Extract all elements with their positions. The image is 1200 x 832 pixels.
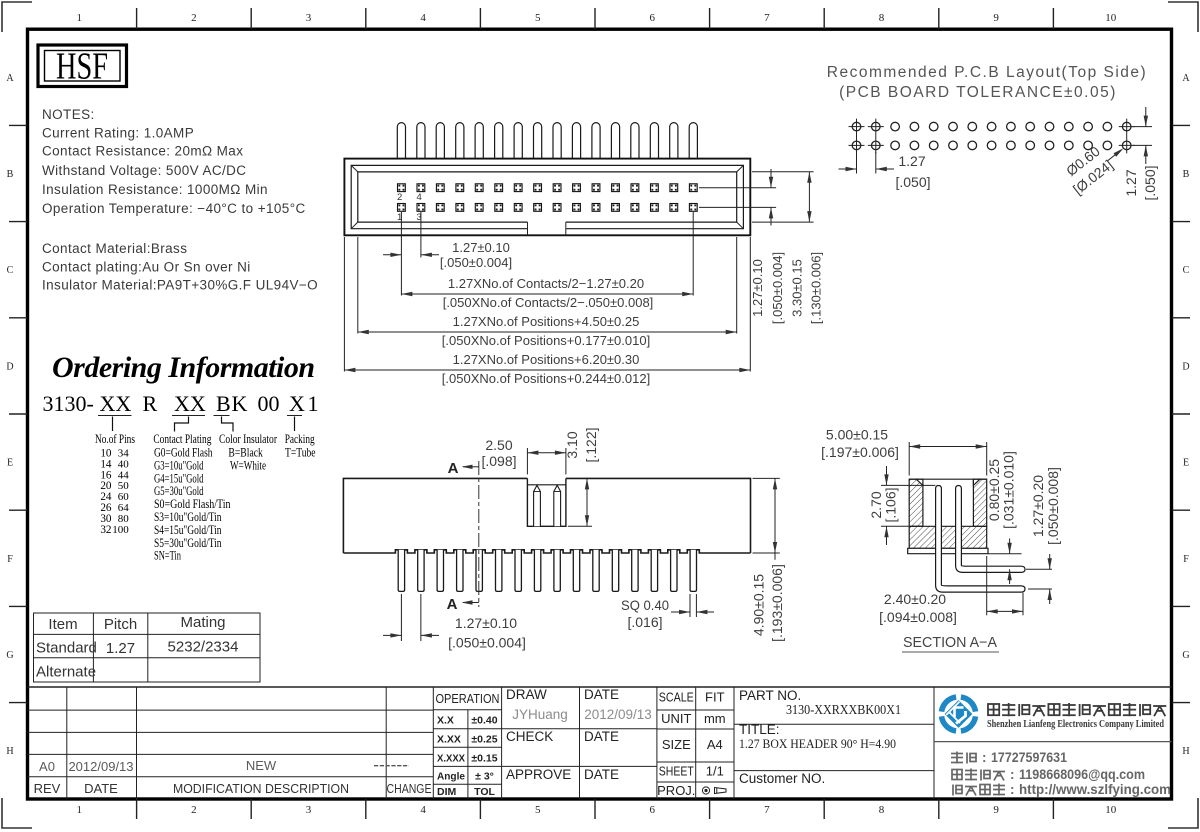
svg-text:3130-: 3130- <box>43 391 94 416</box>
svg-text:Angle: Angle <box>437 771 465 783</box>
svg-text:[.016]: [.016] <box>627 614 662 630</box>
svg-text:APPROVE: APPROVE <box>506 767 571 782</box>
svg-text:1.27±0.10: 1.27±0.10 <box>452 240 510 255</box>
svg-text:Insulation Resistance: 1000MΩ: Insulation Resistance: 1000MΩ Min <box>42 182 268 197</box>
svg-text:100: 100 <box>112 524 129 536</box>
svg-text:SQ 0.40: SQ 0.40 <box>621 597 669 613</box>
svg-text:SCALE: SCALE <box>659 690 694 705</box>
svg-text:SHEET: SHEET <box>659 764 694 779</box>
svg-text:Mating: Mating <box>180 614 225 631</box>
svg-text:Alternate: Alternate <box>36 664 96 681</box>
svg-text:Ordering Information: Ordering Information <box>52 351 315 384</box>
svg-text:[.050±0.004]: [.050±0.004] <box>770 252 785 324</box>
svg-text:1.27±0.10: 1.27±0.10 <box>750 259 765 317</box>
svg-text:[.050XNo.of Contacts/2−.050±0.: [.050XNo.of Contacts/2−.050±0.008] <box>443 295 654 310</box>
svg-text:17727597631: 17727597631 <box>991 750 1067 765</box>
svg-text:6: 6 <box>650 12 656 24</box>
svg-text:[.050±0.008]: [.050±0.008] <box>1045 467 1061 545</box>
svg-text:±0.40: ±0.40 <box>471 715 497 727</box>
svg-text:G3=10u"Gold: G3=10u"Gold <box>154 458 204 472</box>
svg-text:OPERATION: OPERATION <box>436 692 500 706</box>
svg-text:mm: mm <box>704 711 726 726</box>
svg-text:3.10: 3.10 <box>564 431 580 458</box>
svg-text:Customer NO.: Customer NO. <box>739 771 825 786</box>
svg-text:Withstand Voltage: 500V AC/DC: Withstand Voltage: 500V AC/DC <box>42 163 246 178</box>
svg-text::: : <box>982 750 987 765</box>
svg-text:Insulator Material:PA9T+30%G.F: Insulator Material:PA9T+30%G.F UL94V−O <box>42 278 318 293</box>
svg-text:4: 4 <box>420 804 426 816</box>
svg-text:3: 3 <box>306 804 312 816</box>
svg-text:X.X: X.X <box>437 715 454 727</box>
svg-text:Contact plating:Au Or Sn over: Contact plating:Au Or Sn over Ni <box>42 260 251 275</box>
svg-text:PART NO.: PART NO. <box>739 688 801 703</box>
svg-text:[.106]: [.106] <box>883 487 899 522</box>
svg-text:UNIT: UNIT <box>661 711 691 726</box>
svg-text:G0=Gold Flash: G0=Gold Flash <box>154 446 213 460</box>
svg-text:A: A <box>1182 73 1190 84</box>
svg-text:10: 10 <box>1105 804 1117 816</box>
svg-text:± 3°: ± 3° <box>475 771 494 783</box>
svg-text:H: H <box>1182 746 1189 757</box>
svg-text:1.27XNo.of Positions+6.20±0.30: 1.27XNo.of Positions+6.20±0.30 <box>453 352 640 367</box>
svg-text:Item: Item <box>48 616 77 633</box>
svg-text:DATE: DATE <box>584 687 619 702</box>
svg-text:Contact Resistance: 20mΩ Max: Contact Resistance: 20mΩ Max <box>42 144 243 159</box>
svg-text:D: D <box>1182 361 1189 372</box>
svg-text:9: 9 <box>993 804 999 816</box>
svg-text:FIT: FIT <box>705 690 725 705</box>
svg-text:[.193±0.006]: [.193±0.006] <box>769 564 785 642</box>
svg-text:[.050±0.004]: [.050±0.004] <box>448 635 526 651</box>
svg-text:T=Tube: T=Tube <box>285 446 316 460</box>
svg-text:5: 5 <box>535 804 541 816</box>
svg-text:[.098]: [.098] <box>481 453 516 469</box>
svg-text:Shenzhen Lianfeng Electronics: Shenzhen Lianfeng Electronics Company Li… <box>987 719 1164 730</box>
svg-text:[.050XNo.of Positions+0.244±0.: [.050XNo.of Positions+0.244±0.012] <box>442 371 650 386</box>
svg-text:B: B <box>1183 169 1190 180</box>
svg-text:F: F <box>7 554 13 565</box>
svg-text:1: 1 <box>308 391 319 416</box>
svg-text:Color Insulator: Color Insulator <box>219 432 277 446</box>
svg-text:S4=15u"Gold/Tin: S4=15u"Gold/Tin <box>154 523 222 537</box>
svg-text:4: 4 <box>417 192 422 203</box>
svg-text:2: 2 <box>191 804 197 816</box>
svg-text:TITLE:: TITLE: <box>739 722 780 737</box>
svg-text:7: 7 <box>764 804 770 816</box>
svg-text:X.XX: X.XX <box>437 734 461 746</box>
svg-text:1.27: 1.27 <box>898 153 925 169</box>
svg-text:[.050]: [.050] <box>1142 165 1158 200</box>
svg-text:[.050]: [.050] <box>895 174 930 190</box>
svg-text:A4: A4 <box>707 737 723 752</box>
svg-text:Contact Plating: Contact Plating <box>153 432 211 446</box>
svg-text:H: H <box>6 746 13 757</box>
svg-text:A: A <box>6 73 14 84</box>
svg-text:DIM: DIM <box>437 786 457 798</box>
svg-text:REV: REV <box>34 781 61 796</box>
svg-text:Standard: Standard <box>36 640 97 657</box>
svg-text:10: 10 <box>1105 12 1117 24</box>
svg-text:1.27±0.10: 1.27±0.10 <box>455 615 517 631</box>
svg-text:Contact Material:Brass: Contact Material:Brass <box>42 241 187 256</box>
svg-text:B: B <box>216 391 231 416</box>
svg-text:NEW: NEW <box>246 758 277 773</box>
svg-text:S3=10u"Gold/Tin: S3=10u"Gold/Tin <box>154 510 222 524</box>
svg-text:C: C <box>1183 265 1190 276</box>
svg-text:MODIFICATION DESCRIPTION: MODIFICATION DESCRIPTION <box>173 781 349 796</box>
svg-text:[.197±0.006]: [.197±0.006] <box>821 444 899 460</box>
svg-text:E: E <box>7 458 13 469</box>
svg-text:3130-XXRXXBK00X1: 3130-XXRXXBK00X1 <box>786 703 901 718</box>
svg-text:G: G <box>1182 650 1189 661</box>
svg-text:NOTES:: NOTES: <box>42 107 95 122</box>
svg-text:5: 5 <box>535 12 541 24</box>
svg-text:[.122]: [.122] <box>583 427 599 462</box>
svg-text:6: 6 <box>650 804 656 816</box>
svg-text:PROJ.: PROJ. <box>657 783 695 798</box>
svg-text:TOL: TOL <box>474 786 495 798</box>
svg-text:Packing: Packing <box>285 432 315 446</box>
svg-text:Current Rating: 1.0AMP: Current Rating: 1.0AMP <box>42 126 194 141</box>
svg-text:No.of Pins: No.of Pins <box>95 432 135 446</box>
svg-text:1/1: 1/1 <box>706 764 724 779</box>
svg-text:DATE: DATE <box>584 767 619 782</box>
svg-text:http://www.szlfying.com: http://www.szlfying.com <box>1019 782 1171 797</box>
svg-text:JYHuang: JYHuang <box>512 707 568 722</box>
svg-text:SN=Tin: SN=Tin <box>154 549 181 563</box>
svg-text:00: 00 <box>258 391 280 416</box>
svg-text:G4=15u"Gold: G4=15u"Gold <box>154 471 204 485</box>
svg-text:A: A <box>448 460 459 477</box>
svg-text:B: B <box>7 169 14 180</box>
svg-text:32: 32 <box>100 524 111 536</box>
svg-text:1.27 BOX HEADER 90° H=4.90: 1.27 BOX HEADER 90° H=4.90 <box>739 736 896 751</box>
svg-text:3.30±0.15: 3.30±0.15 <box>790 259 805 317</box>
svg-text:R: R <box>143 391 158 416</box>
svg-text:5232/2334: 5232/2334 <box>168 639 239 656</box>
svg-text:(PCB BOARD TOLERANCE±0.05): (PCB BOARD TOLERANCE±0.05) <box>839 84 1117 101</box>
svg-text:DATE: DATE <box>84 781 118 796</box>
svg-text:2012/09/13: 2012/09/13 <box>584 707 652 722</box>
svg-text:DATE: DATE <box>584 729 619 744</box>
svg-text:1.27±0.20: 1.27±0.20 <box>1030 475 1046 537</box>
svg-text:S5=30u"Gold/Tin: S5=30u"Gold/Tin <box>154 536 222 550</box>
svg-text:[.031±0.010]: [.031±0.010] <box>1000 451 1016 529</box>
svg-text:9: 9 <box>993 12 999 24</box>
svg-text:S0=Gold Flash/Tin: S0=Gold Flash/Tin <box>154 497 231 511</box>
svg-text:G: G <box>6 650 13 661</box>
svg-text:HSF: HSF <box>56 46 108 88</box>
svg-text:K: K <box>232 391 248 416</box>
svg-text:B=Black: B=Black <box>228 446 263 460</box>
svg-text:±0.15: ±0.15 <box>471 753 497 765</box>
svg-text:1.27XNo.of Positions+4.50±0.25: 1.27XNo.of Positions+4.50±0.25 <box>453 314 640 329</box>
svg-text:7: 7 <box>764 12 770 24</box>
svg-text:2012/09/13: 2012/09/13 <box>68 759 133 774</box>
svg-text:CHECK: CHECK <box>506 729 553 744</box>
svg-text:D: D <box>6 361 13 372</box>
svg-text:2: 2 <box>397 192 402 203</box>
svg-text:0.80±0.25: 0.80±0.25 <box>986 459 1002 521</box>
svg-text:1198668096@qq.com: 1198668096@qq.com <box>1019 767 1145 782</box>
svg-text:XX: XX <box>100 391 132 416</box>
svg-text:[.094±0.008]: [.094±0.008] <box>879 609 957 625</box>
svg-text:1.27XNo.of Contacts/2−1.27±0.2: 1.27XNo.of Contacts/2−1.27±0.20 <box>448 276 644 291</box>
svg-text:A: A <box>447 596 458 613</box>
svg-text:SIZE: SIZE <box>662 737 691 752</box>
svg-text:3: 3 <box>306 12 312 24</box>
svg-text:2.40±0.20: 2.40±0.20 <box>884 591 946 607</box>
svg-text:1.27: 1.27 <box>1123 169 1139 196</box>
svg-text:2: 2 <box>191 12 197 24</box>
svg-text:A0: A0 <box>39 759 55 774</box>
svg-text:Pitch: Pitch <box>104 616 137 633</box>
svg-text:[.050±0.004]: [.050±0.004] <box>440 255 512 270</box>
svg-text:E: E <box>1183 458 1189 469</box>
svg-text:XX: XX <box>174 391 206 416</box>
svg-text:1: 1 <box>77 12 83 24</box>
svg-text:C: C <box>7 265 14 276</box>
svg-text:±0.25: ±0.25 <box>471 734 497 746</box>
svg-text:G5=30u"Gold: G5=30u"Gold <box>154 484 204 498</box>
svg-text:[.130±0.006]: [.130±0.006] <box>809 252 824 324</box>
svg-text:4.90±0.15: 4.90±0.15 <box>750 574 766 636</box>
svg-text:8: 8 <box>879 12 885 24</box>
svg-text:8: 8 <box>879 804 885 816</box>
svg-text:[.050XNo.of Positions+0.177±0.: [.050XNo.of Positions+0.177±0.010] <box>442 333 650 348</box>
svg-text::: : <box>1010 782 1015 797</box>
svg-text:CHANGE: CHANGE <box>387 781 432 796</box>
svg-text:SECTION A−A: SECTION A−A <box>903 635 997 651</box>
svg-text:DRAW: DRAW <box>506 687 547 702</box>
svg-text:X: X <box>289 391 305 416</box>
svg-text:F: F <box>1183 554 1189 565</box>
svg-text:Operation Temperature: −40°C t: Operation Temperature: −40°C to +105°C <box>42 201 306 216</box>
svg-text:W=White: W=White <box>230 459 266 473</box>
svg-text:X.XXX: X.XXX <box>437 753 465 765</box>
svg-text:5.00±0.15: 5.00±0.15 <box>826 427 888 443</box>
svg-text:1.27: 1.27 <box>106 640 135 657</box>
svg-text:2.50: 2.50 <box>485 437 512 453</box>
svg-text::: : <box>1010 767 1015 782</box>
svg-text:1: 1 <box>77 804 83 816</box>
svg-text:Recommended P.C.B Layout(Top S: Recommended P.C.B Layout(Top Side) <box>827 64 1147 81</box>
svg-text:4: 4 <box>420 12 426 24</box>
